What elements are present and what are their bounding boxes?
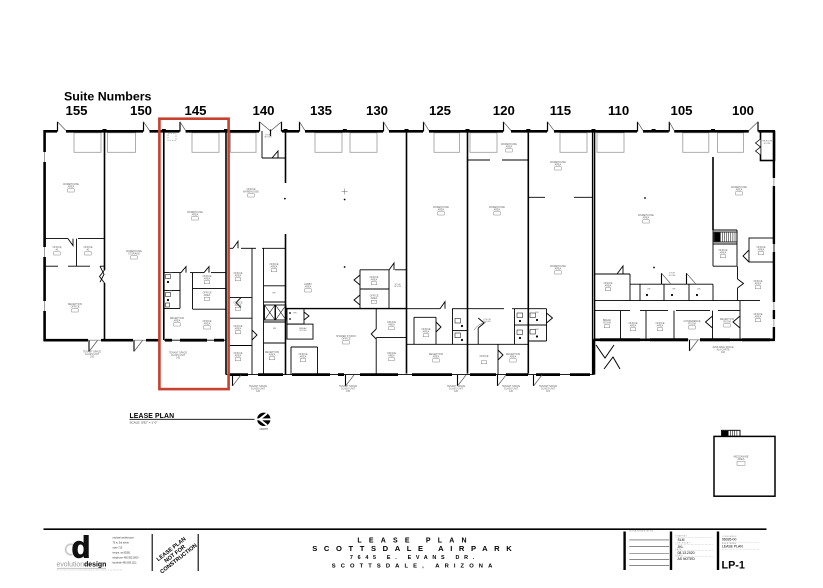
svg-text:AREA: AREA xyxy=(235,275,242,278)
svg-text:NORTH: NORTH xyxy=(260,428,269,431)
svg-text:AREA: AREA xyxy=(174,320,181,323)
svg-text:115: 115 xyxy=(546,390,550,393)
svg-text:AREA: AREA xyxy=(423,331,430,334)
svg-text:AREA: AREA xyxy=(388,324,395,327)
svg-text:130: 130 xyxy=(366,103,388,118)
svg-text:ROOM: ROOM xyxy=(603,322,611,325)
svg-text:AREA: AREA xyxy=(555,268,562,271)
svg-text:RR: RR xyxy=(272,292,276,294)
svg-text:140: 140 xyxy=(256,390,261,393)
svg-text:ROOM: ROOM xyxy=(669,275,676,277)
svg-text:AREA: AREA xyxy=(388,355,395,358)
svg-text:AREA: AREA xyxy=(271,266,278,269)
svg-text:AREA: AREA xyxy=(555,164,562,167)
svg-text:125: 125 xyxy=(454,390,459,393)
svg-text:70 w. 3rd street: 70 w. 3rd street xyxy=(113,541,130,544)
svg-text:AREA: AREA xyxy=(643,217,650,220)
svg-text:120: 120 xyxy=(493,103,515,118)
svg-text:AREA: AREA xyxy=(305,286,312,289)
svg-text:SCOTTSDALE AIRPARK: SCOTTSDALE AIRPARK xyxy=(312,544,518,553)
svg-text:ROOM: ROOM xyxy=(394,286,401,288)
svg-text:OFFICE: OFFICE xyxy=(342,338,351,341)
svg-text:facsimile 480.555.1111: facsimile 480.555.1111 xyxy=(113,561,138,564)
svg-text:AREA: AREA xyxy=(371,297,378,300)
svg-text:AREA: AREA xyxy=(720,252,727,255)
svg-text:AREA: AREA xyxy=(494,209,501,212)
svg-text:AREA: AREA xyxy=(433,356,440,359)
svg-text:BR: BR xyxy=(648,289,651,291)
svg-text:BR: BR xyxy=(698,289,701,291)
svg-text:AREA: AREA xyxy=(737,457,744,461)
svg-text:155: 155 xyxy=(90,355,95,358)
svg-text:AREA: AREA xyxy=(506,146,513,149)
svg-text:SCALE: 3/32" = 1'-0": SCALE: 3/32" = 1'-0" xyxy=(130,421,158,425)
svg-text:135: 135 xyxy=(346,390,351,393)
svg-text:LEASE PLAN: LEASE PLAN xyxy=(722,545,743,549)
svg-text:AREA: AREA xyxy=(510,356,517,359)
svg-text:tempe, az 85281: tempe, az 85281 xyxy=(113,551,131,554)
svg-text:N O D A T E R E V I S I O: N O D A T E R E V I S I O N xyxy=(630,529,654,532)
svg-text:135: 135 xyxy=(310,103,332,118)
svg-text:suite 710: suite 710 xyxy=(113,546,123,549)
svg-text:AREA: AREA xyxy=(269,354,276,357)
svg-text:AS NOTED: AS NOTED xyxy=(678,557,696,561)
svg-text:AREA: AREA xyxy=(300,356,307,359)
svg-text:AREA: AREA xyxy=(736,189,743,192)
svg-text:ROOM: ROOM xyxy=(300,330,307,332)
svg-text:d: d xyxy=(72,530,91,565)
svg-text:AREA: AREA xyxy=(204,323,211,326)
svg-text:AREA: AREA xyxy=(192,214,199,217)
svg-text:RR: RR xyxy=(535,312,539,314)
svg-text:SLM: SLM xyxy=(678,538,685,542)
svg-text:OFFICE: OFFICE xyxy=(71,306,80,309)
svg-text:michael architecture: michael architecture xyxy=(113,537,135,540)
svg-text:AREA: AREA xyxy=(438,209,445,212)
svg-text:ROOM: ROOM xyxy=(484,321,491,323)
svg-text:LEASE PLAN: LEASE PLAN xyxy=(130,413,175,420)
svg-text:AREA: AREA xyxy=(755,316,762,319)
svg-text:AREA: AREA xyxy=(235,328,242,331)
svg-text:BR: BR xyxy=(673,289,676,291)
svg-text:RR: RR xyxy=(293,312,297,314)
svg-text:a r c h i t e c t u r e i n: a r c h i t e c t u r e i n t e r i o r … xyxy=(57,569,122,572)
svg-text:STORAGE: STORAGE xyxy=(128,253,140,256)
svg-text:AREA: AREA xyxy=(605,285,612,288)
svg-text:AREA: AREA xyxy=(755,283,762,286)
svg-text:AREA: AREA xyxy=(630,325,637,328)
svg-text:OFFICE: OFFICE xyxy=(480,355,489,358)
svg-text:SCOTTSDALE, ARIZONA: SCOTTSDALE, ARIZONA xyxy=(332,563,498,569)
svg-text:96026-00: 96026-00 xyxy=(722,538,736,542)
svg-text:ROOM: ROOM xyxy=(688,323,696,326)
svg-text:WAREHOUSE: WAREHOUSE xyxy=(243,191,259,194)
svg-text:telephone 480.555.0000: telephone 480.555.0000 xyxy=(113,556,139,559)
svg-text:evolutiondesign: evolutiondesign xyxy=(57,562,107,569)
svg-text:120: 120 xyxy=(509,390,514,393)
svg-text:110: 110 xyxy=(608,103,629,118)
svg-text:100: 100 xyxy=(721,351,726,354)
svg-text:155: 155 xyxy=(65,103,87,118)
svg-text:AREA: AREA xyxy=(235,355,242,358)
svg-text:ROOM: ROOM xyxy=(764,143,771,145)
svg-text:RR: RR xyxy=(535,329,539,331)
svg-text:AREA: AREA xyxy=(68,186,75,189)
svg-text:AREA: AREA xyxy=(204,278,211,281)
svg-text:150: 150 xyxy=(130,103,152,118)
svg-text:AREA: AREA xyxy=(235,304,242,307)
svg-text:7645 E. EVANS DR.: 7645 E. EVANS DR. xyxy=(350,555,479,561)
svg-text:140: 140 xyxy=(252,103,274,118)
svg-text:125: 125 xyxy=(429,103,451,118)
svg-text:AREA: AREA xyxy=(758,249,765,252)
svg-text:AREA: AREA xyxy=(204,294,211,297)
svg-text:145: 145 xyxy=(176,356,181,359)
svg-text:LP-1: LP-1 xyxy=(722,559,745,571)
svg-text:145: 145 xyxy=(184,103,206,118)
svg-text:AREA: AREA xyxy=(371,279,378,282)
svg-text:RR: RR xyxy=(273,328,277,330)
svg-text:Suite Numbers: Suite Numbers xyxy=(64,90,152,104)
svg-text:ROOM: ROOM xyxy=(265,137,272,139)
svg-text:105: 105 xyxy=(670,103,692,118)
svg-text:AREA: AREA xyxy=(657,325,664,328)
svg-text:ROOM: ROOM xyxy=(723,321,731,324)
svg-text:115: 115 xyxy=(550,103,571,118)
svg-text:RR: RR xyxy=(169,290,173,292)
svg-text:100: 100 xyxy=(732,103,754,118)
svg-text:RR: RR xyxy=(169,272,173,274)
